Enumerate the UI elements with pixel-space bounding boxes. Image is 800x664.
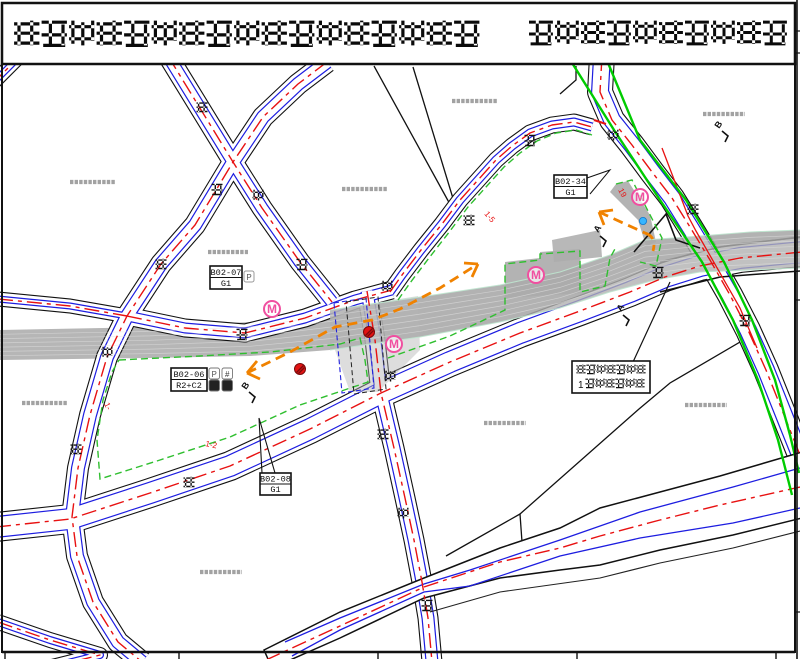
svg-text:P: P xyxy=(212,370,217,379)
svg-text:#: # xyxy=(225,370,230,379)
svg-text:M: M xyxy=(531,268,541,282)
svg-text:M: M xyxy=(267,302,277,316)
svg-text:G1: G1 xyxy=(270,485,280,495)
svg-text:1: 1 xyxy=(578,380,584,391)
svg-text:M: M xyxy=(389,337,399,351)
svg-text:B02-06: B02-06 xyxy=(174,370,205,380)
svg-text:G1: G1 xyxy=(221,279,231,289)
svg-text:B02-34: B02-34 xyxy=(555,177,586,187)
svg-text:P: P xyxy=(246,273,251,282)
svg-text:G1: G1 xyxy=(565,188,575,198)
svg-text:B02-08: B02-08 xyxy=(260,475,291,485)
svg-text:R2+C2: R2+C2 xyxy=(176,381,202,391)
svg-text:B02-07: B02-07 xyxy=(211,268,242,278)
svg-text:M: M xyxy=(635,190,645,204)
